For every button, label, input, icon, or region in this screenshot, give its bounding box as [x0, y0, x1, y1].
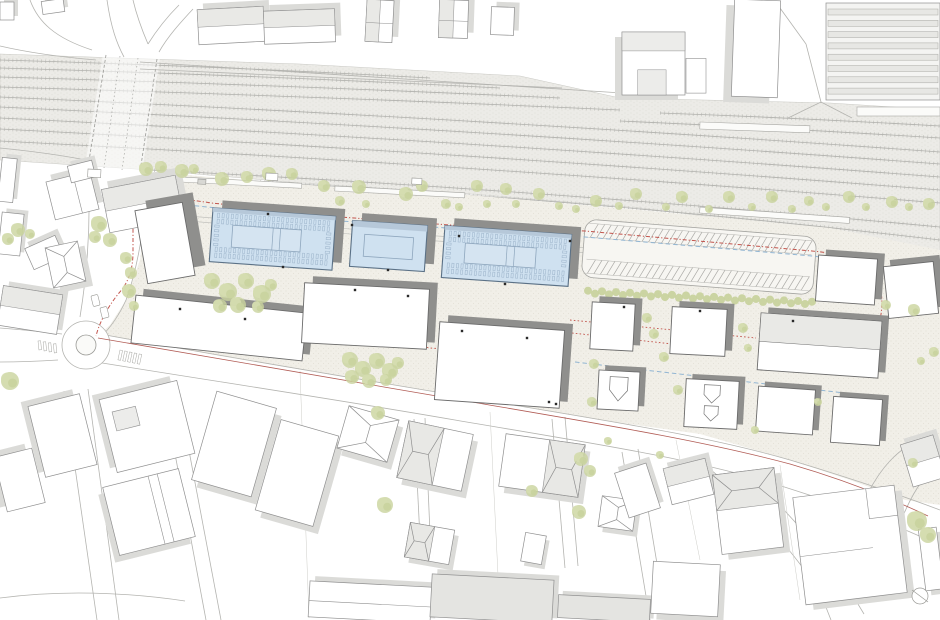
tree [630, 188, 642, 200]
tree [662, 203, 670, 211]
building-b1 [209, 200, 345, 271]
tree [917, 357, 925, 365]
building-c33 [308, 576, 437, 620]
tree [584, 465, 596, 477]
building-c34 [430, 569, 559, 620]
tree [380, 374, 392, 386]
building-c36 [650, 561, 726, 620]
tree [908, 304, 920, 316]
entrance-dot [555, 403, 557, 405]
tree [751, 426, 759, 434]
tree [572, 205, 580, 213]
tree [788, 205, 796, 213]
tree [352, 180, 366, 194]
entrance-dot [548, 401, 550, 403]
building-s3 [757, 307, 889, 379]
entrance-dot [526, 337, 528, 339]
entrance-dot [267, 213, 269, 215]
building-b3 [441, 218, 581, 287]
tree [286, 168, 298, 180]
tree [215, 172, 229, 186]
tree [252, 301, 264, 313]
crosswalk-bar [132, 353, 137, 363]
tree [318, 180, 330, 192]
platform-strip [857, 107, 940, 116]
tree [500, 183, 512, 195]
road-edge [806, 44, 821, 102]
tree [265, 279, 277, 291]
entrance-dot [792, 320, 794, 322]
crosswalk-bar [123, 351, 128, 361]
tree [862, 203, 870, 211]
tree [676, 191, 688, 203]
tree [120, 252, 132, 264]
crosswalk-bar [53, 344, 57, 353]
building-c29 [498, 434, 591, 504]
tree [25, 229, 35, 239]
building-c18 [45, 240, 93, 294]
crosswalk-bar [137, 354, 142, 364]
tree [748, 203, 756, 211]
tree [659, 352, 669, 362]
tree [392, 357, 404, 369]
road-edge [0, 360, 58, 362]
tree [604, 437, 612, 445]
tree [362, 200, 370, 208]
tree [673, 385, 683, 395]
road-edge [780, 8, 806, 44]
entrance-dot [623, 306, 625, 308]
building-c19 [0, 281, 68, 336]
entrance-dot [699, 310, 701, 312]
tree [455, 203, 463, 211]
tree [213, 299, 227, 313]
tree [804, 196, 814, 206]
building-s2 [670, 301, 735, 357]
building-c25 [97, 469, 197, 563]
building-c7 [723, 0, 781, 104]
road-edge [107, 0, 124, 57]
tree [905, 203, 913, 211]
tree [103, 233, 117, 247]
entrance-dot [179, 308, 181, 310]
road-edge [159, 9, 193, 52]
tree [814, 398, 822, 406]
entrance-dot [354, 289, 356, 291]
building-c28 [395, 421, 479, 499]
building-h4 [830, 391, 888, 446]
tree [2, 233, 14, 245]
tree [139, 162, 153, 176]
entrance-dot [504, 283, 506, 285]
tree [929, 347, 939, 357]
tree [649, 329, 659, 339]
crosswalk-bar [128, 352, 133, 362]
tree [377, 497, 393, 513]
tree [766, 191, 778, 203]
tree [572, 505, 586, 519]
building-c40 [793, 484, 915, 610]
road-edge [148, 5, 179, 44]
building-h3 [755, 381, 821, 435]
tree [1, 372, 19, 390]
building-c27 [335, 406, 405, 470]
roundabout-island [76, 335, 96, 355]
tree [881, 300, 891, 310]
small-shelter [266, 173, 278, 181]
building-c15 [0, 153, 22, 203]
building-w3 [302, 276, 438, 350]
entrance-dot [244, 318, 246, 320]
tree [371, 406, 385, 420]
tree [822, 203, 830, 211]
tree [471, 180, 483, 192]
building-b2 [349, 212, 437, 272]
tree [923, 198, 935, 210]
building-c24 [92, 375, 195, 474]
road-edge [133, 0, 148, 44]
small-shelter [198, 179, 206, 184]
building-c38 [662, 452, 719, 504]
tree [441, 199, 451, 209]
tree [335, 196, 345, 206]
entrance-dot [351, 224, 353, 226]
building-c31 [520, 532, 550, 569]
tree [589, 359, 599, 369]
tree [175, 164, 189, 178]
building-e1 [815, 249, 884, 305]
tree [91, 216, 107, 232]
building-c9 [0, 0, 18, 20]
building-c35 [557, 591, 654, 620]
building-w4 [434, 315, 573, 409]
tree [189, 164, 199, 174]
tree [615, 202, 623, 210]
tree [238, 273, 254, 289]
tree [230, 297, 246, 313]
tree [483, 200, 491, 208]
building-s1 [590, 296, 643, 352]
entrance-dot [569, 240, 571, 242]
building-c3 [365, 0, 400, 43]
tree [590, 195, 602, 207]
tree [129, 301, 139, 311]
tree [920, 527, 936, 543]
entrance-dot [458, 235, 460, 237]
crosswalk-bar [43, 342, 47, 351]
entrance-dot [282, 266, 284, 268]
tree [738, 323, 748, 333]
parked-car [91, 294, 100, 306]
tree [155, 161, 167, 173]
tree [587, 397, 597, 407]
tree [642, 313, 652, 323]
tree [526, 485, 538, 497]
tree [574, 452, 588, 466]
building-h1 [597, 365, 646, 411]
tree [555, 202, 563, 210]
crosswalk-bar [48, 343, 52, 352]
tree [908, 458, 918, 468]
tree [886, 196, 898, 208]
small-shelter [88, 169, 101, 178]
tree [125, 267, 137, 279]
building-c6 [615, 32, 706, 100]
tree [89, 231, 101, 243]
tree [204, 273, 220, 289]
building-c10 [41, 0, 69, 14]
building-c4 [438, 0, 475, 39]
site-plan-svg [0, 0, 940, 620]
building-c5 [491, 2, 520, 36]
crosswalk-bar [118, 350, 123, 360]
building-c8 [826, 3, 940, 100]
tree [723, 191, 735, 203]
building-c30 [403, 522, 459, 570]
building-c1 [197, 0, 271, 45]
entrance-dot [387, 269, 389, 271]
tree [362, 374, 376, 388]
tree [399, 187, 413, 201]
tree [241, 171, 253, 183]
crosswalk-bar [38, 341, 42, 350]
tree [705, 205, 713, 213]
tree [122, 284, 136, 298]
tree [11, 223, 25, 237]
tree [744, 344, 752, 352]
entrance-dot [407, 295, 409, 297]
small-shelter [412, 178, 422, 185]
building-c2 [263, 3, 341, 45]
tree [533, 188, 545, 200]
tree [843, 191, 855, 203]
site-plan [0, 0, 940, 620]
tree [345, 370, 359, 384]
tree [656, 451, 664, 459]
building-h2 [684, 374, 746, 430]
entrance-dot [461, 330, 463, 332]
building-c39 [712, 467, 790, 561]
tree [512, 200, 520, 208]
